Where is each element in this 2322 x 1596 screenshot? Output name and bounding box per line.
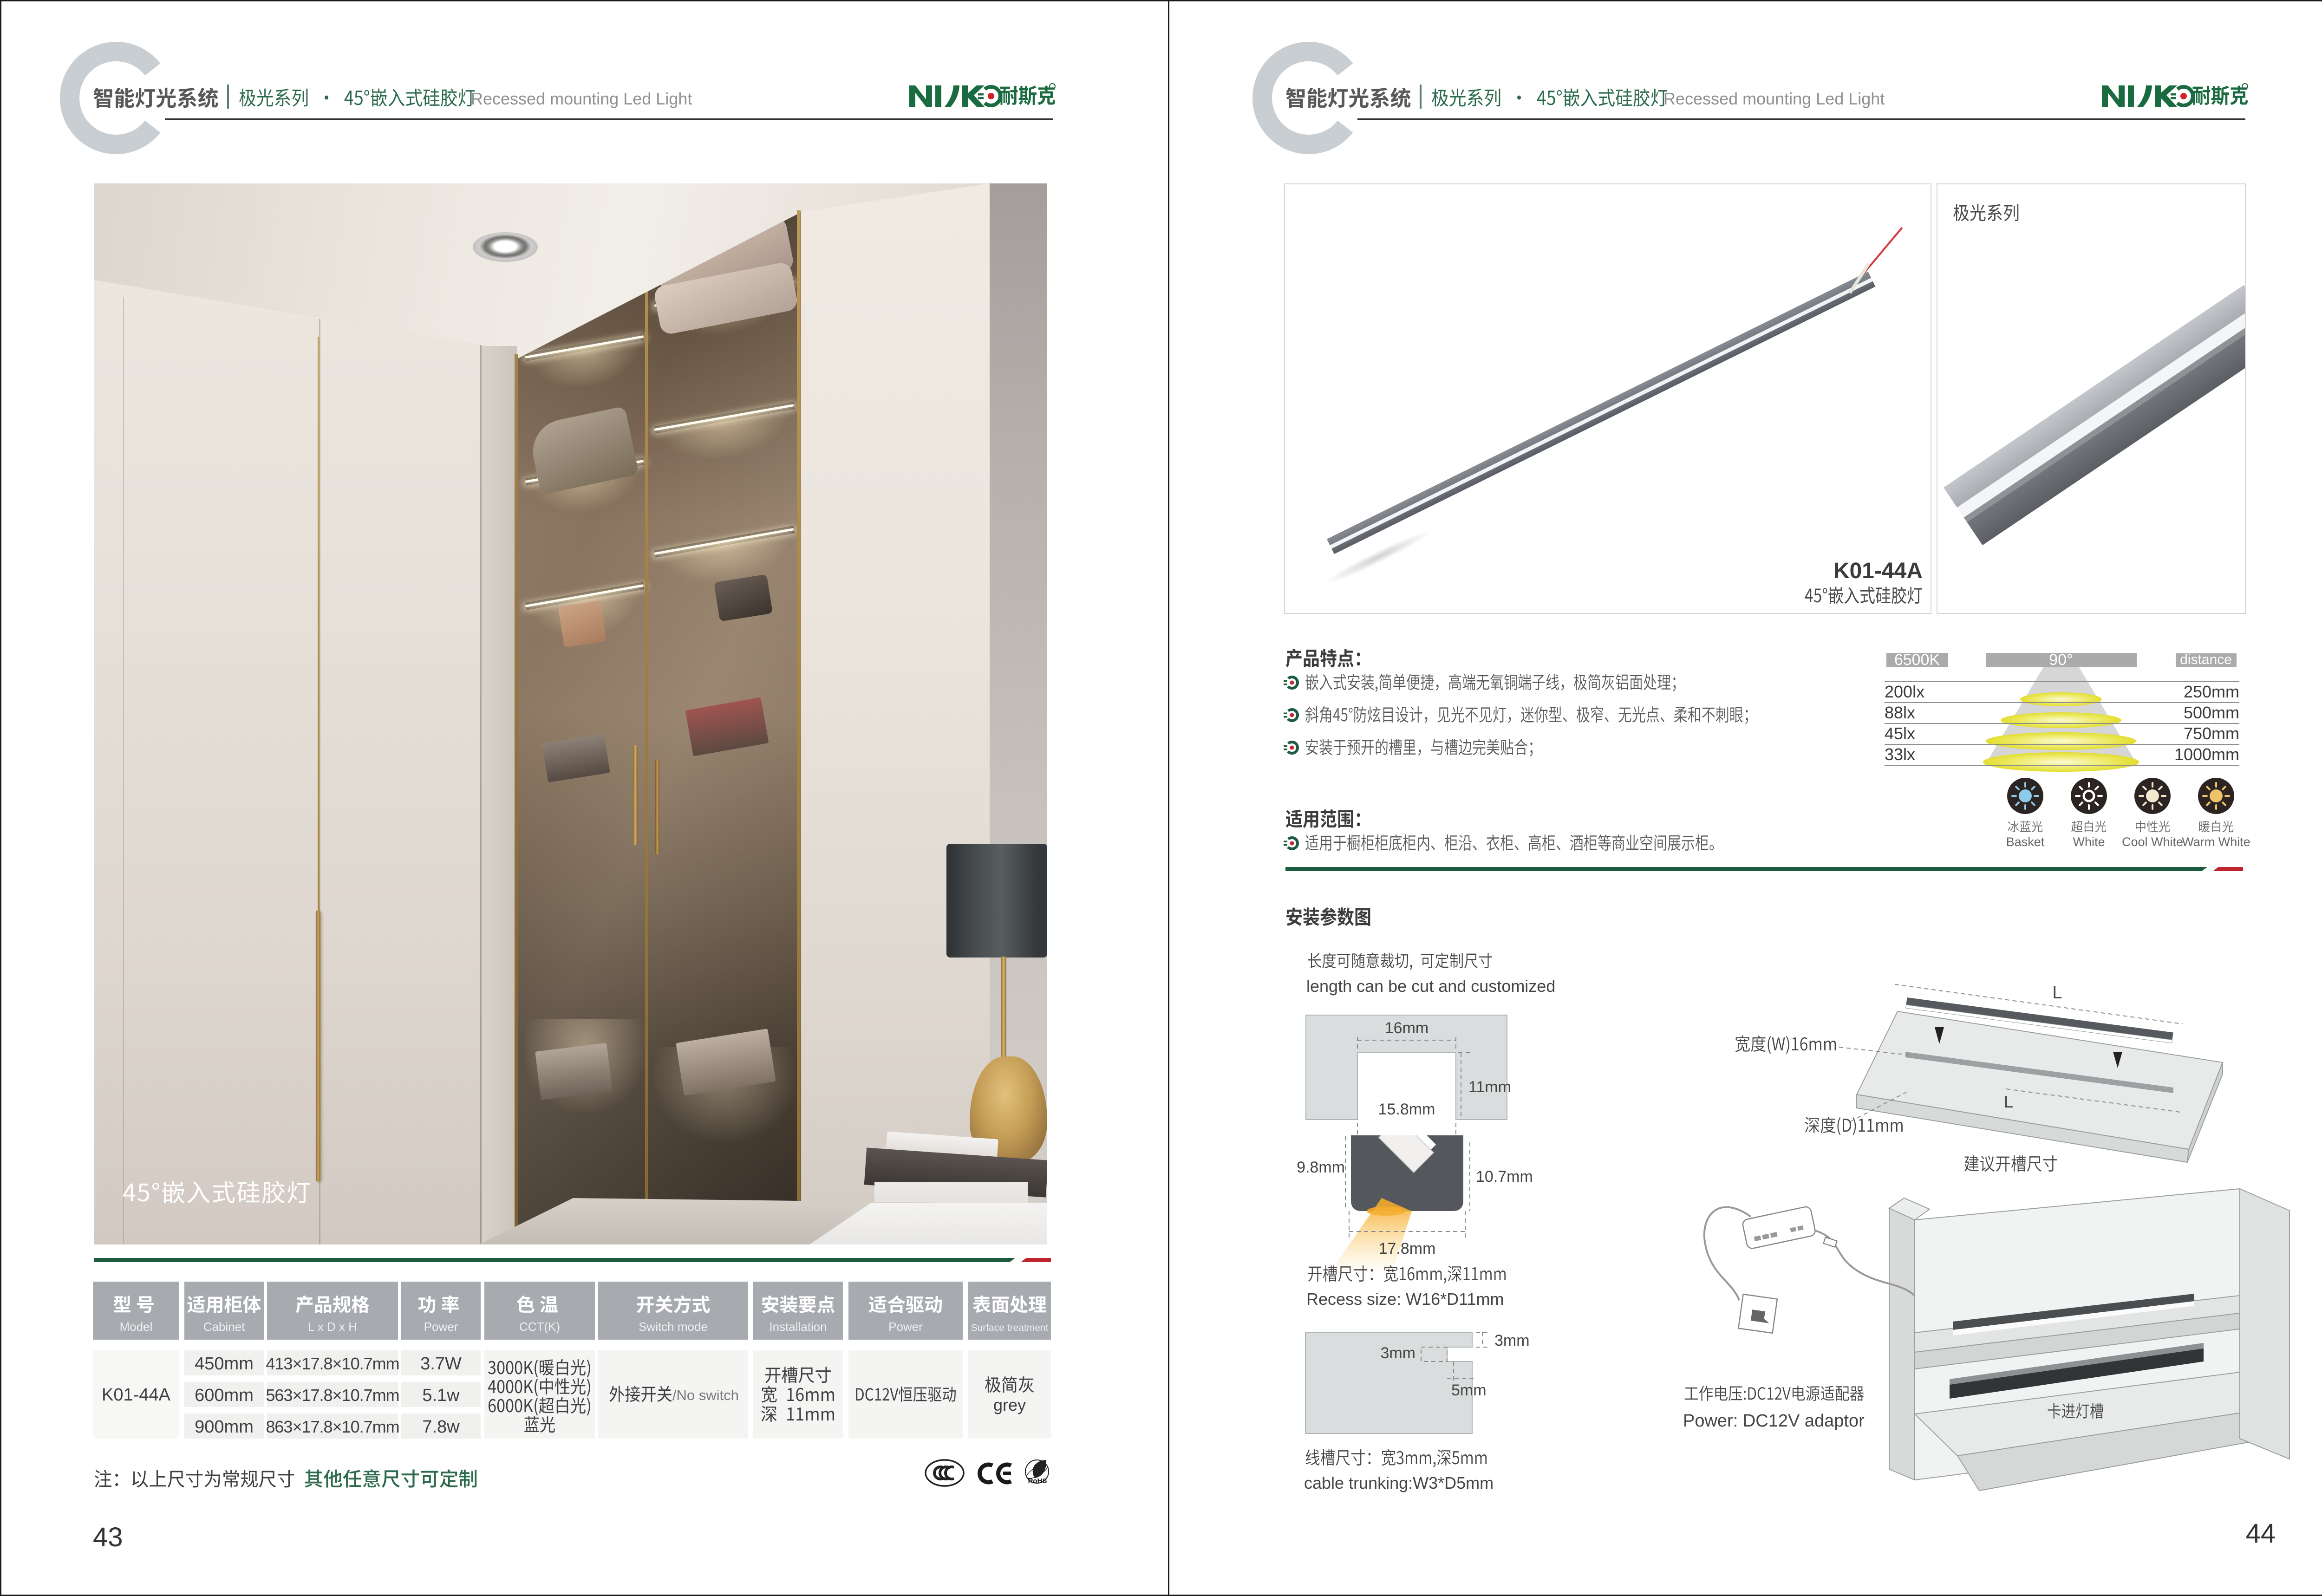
svg-text:45lx: 45lx bbox=[1885, 724, 1915, 743]
svg-text:distance: distance bbox=[2180, 652, 2232, 667]
svg-text:450mm: 450mm bbox=[195, 1354, 254, 1374]
svg-text:Model: Model bbox=[120, 1320, 153, 1334]
svg-text:15.8mm: 15.8mm bbox=[1378, 1101, 1435, 1118]
svg-text:Cool White: Cool White bbox=[2122, 835, 2183, 849]
svg-text:Power: Power bbox=[424, 1320, 458, 1334]
svg-text:90°: 90° bbox=[2049, 651, 2073, 669]
svg-text:3mm: 3mm bbox=[1380, 1344, 1415, 1362]
svg-text:Power: DC12V adaptor: Power: DC12V adaptor bbox=[1683, 1411, 1865, 1431]
svg-text:500mm: 500mm bbox=[2184, 703, 2239, 722]
svg-text:44: 44 bbox=[2246, 1518, 2276, 1549]
svg-text:Basket: Basket bbox=[2006, 835, 2045, 849]
svg-text:3mm: 3mm bbox=[1494, 1332, 1530, 1349]
svg-text:L: L bbox=[2004, 1092, 2013, 1111]
svg-text:10.7mm: 10.7mm bbox=[1476, 1168, 1533, 1186]
svg-text:/No switch: /No switch bbox=[672, 1387, 739, 1403]
svg-text:563×17.8×10.7mm: 563×17.8×10.7mm bbox=[266, 1386, 399, 1405]
svg-text:7.8w: 7.8w bbox=[422, 1417, 460, 1437]
svg-text:863×17.8×10.7mm: 863×17.8×10.7mm bbox=[266, 1417, 399, 1436]
svg-text:600mm: 600mm bbox=[195, 1386, 254, 1405]
svg-text:6500K: 6500K bbox=[1894, 651, 1940, 669]
svg-text:K01-44A: K01-44A bbox=[1833, 559, 1923, 583]
svg-text:16mm: 16mm bbox=[1385, 1019, 1428, 1037]
svg-text:cable trunking:W3*D5mm: cable trunking:W3*D5mm bbox=[1304, 1473, 1494, 1492]
svg-text:413×17.8×10.7mm: 413×17.8×10.7mm bbox=[266, 1354, 399, 1373]
svg-text:5.1w: 5.1w bbox=[422, 1386, 460, 1405]
svg-text:43: 43 bbox=[93, 1522, 123, 1552]
svg-text:1000mm: 1000mm bbox=[2174, 745, 2239, 764]
svg-text:9.8mm: 9.8mm bbox=[1297, 1159, 1345, 1176]
svg-text:33lx: 33lx bbox=[1885, 745, 1915, 764]
svg-text:Warm White: Warm White bbox=[2182, 835, 2250, 849]
svg-text:RoHS: RoHS bbox=[1028, 1477, 1047, 1485]
svg-text:length can be cut and customiz: length can be cut and customized bbox=[1306, 977, 1555, 996]
svg-text:K01-44A: K01-44A bbox=[102, 1385, 171, 1405]
svg-text:250mm: 250mm bbox=[2184, 682, 2239, 701]
svg-text:CCT(K): CCT(K) bbox=[519, 1320, 560, 1334]
svg-text:3.7W: 3.7W bbox=[420, 1354, 462, 1374]
svg-text:900mm: 900mm bbox=[195, 1417, 254, 1437]
svg-text:Power: Power bbox=[888, 1320, 923, 1334]
svg-text:White: White bbox=[2073, 835, 2105, 849]
svg-text:200lx: 200lx bbox=[1885, 682, 1924, 701]
svg-text:Installation: Installation bbox=[769, 1320, 827, 1334]
svg-text:11mm: 11mm bbox=[1468, 1078, 1511, 1096]
svg-text:88lx: 88lx bbox=[1885, 703, 1915, 722]
svg-text:Switch mode: Switch mode bbox=[639, 1320, 708, 1334]
svg-text:Surface treatment: Surface treatment bbox=[971, 1322, 1049, 1333]
svg-text:750mm: 750mm bbox=[2184, 724, 2239, 743]
svg-text:Cabinet: Cabinet bbox=[203, 1320, 245, 1334]
svg-text:L x D x H: L x D x H bbox=[308, 1320, 357, 1334]
svg-text:17.8mm: 17.8mm bbox=[1379, 1240, 1436, 1257]
svg-text:grey: grey bbox=[993, 1395, 1026, 1414]
svg-text:Recess size: W16*D11mm: Recess size: W16*D11mm bbox=[1306, 1290, 1504, 1309]
svg-text:5mm: 5mm bbox=[1451, 1381, 1487, 1399]
svg-text:L: L bbox=[2052, 983, 2062, 1003]
